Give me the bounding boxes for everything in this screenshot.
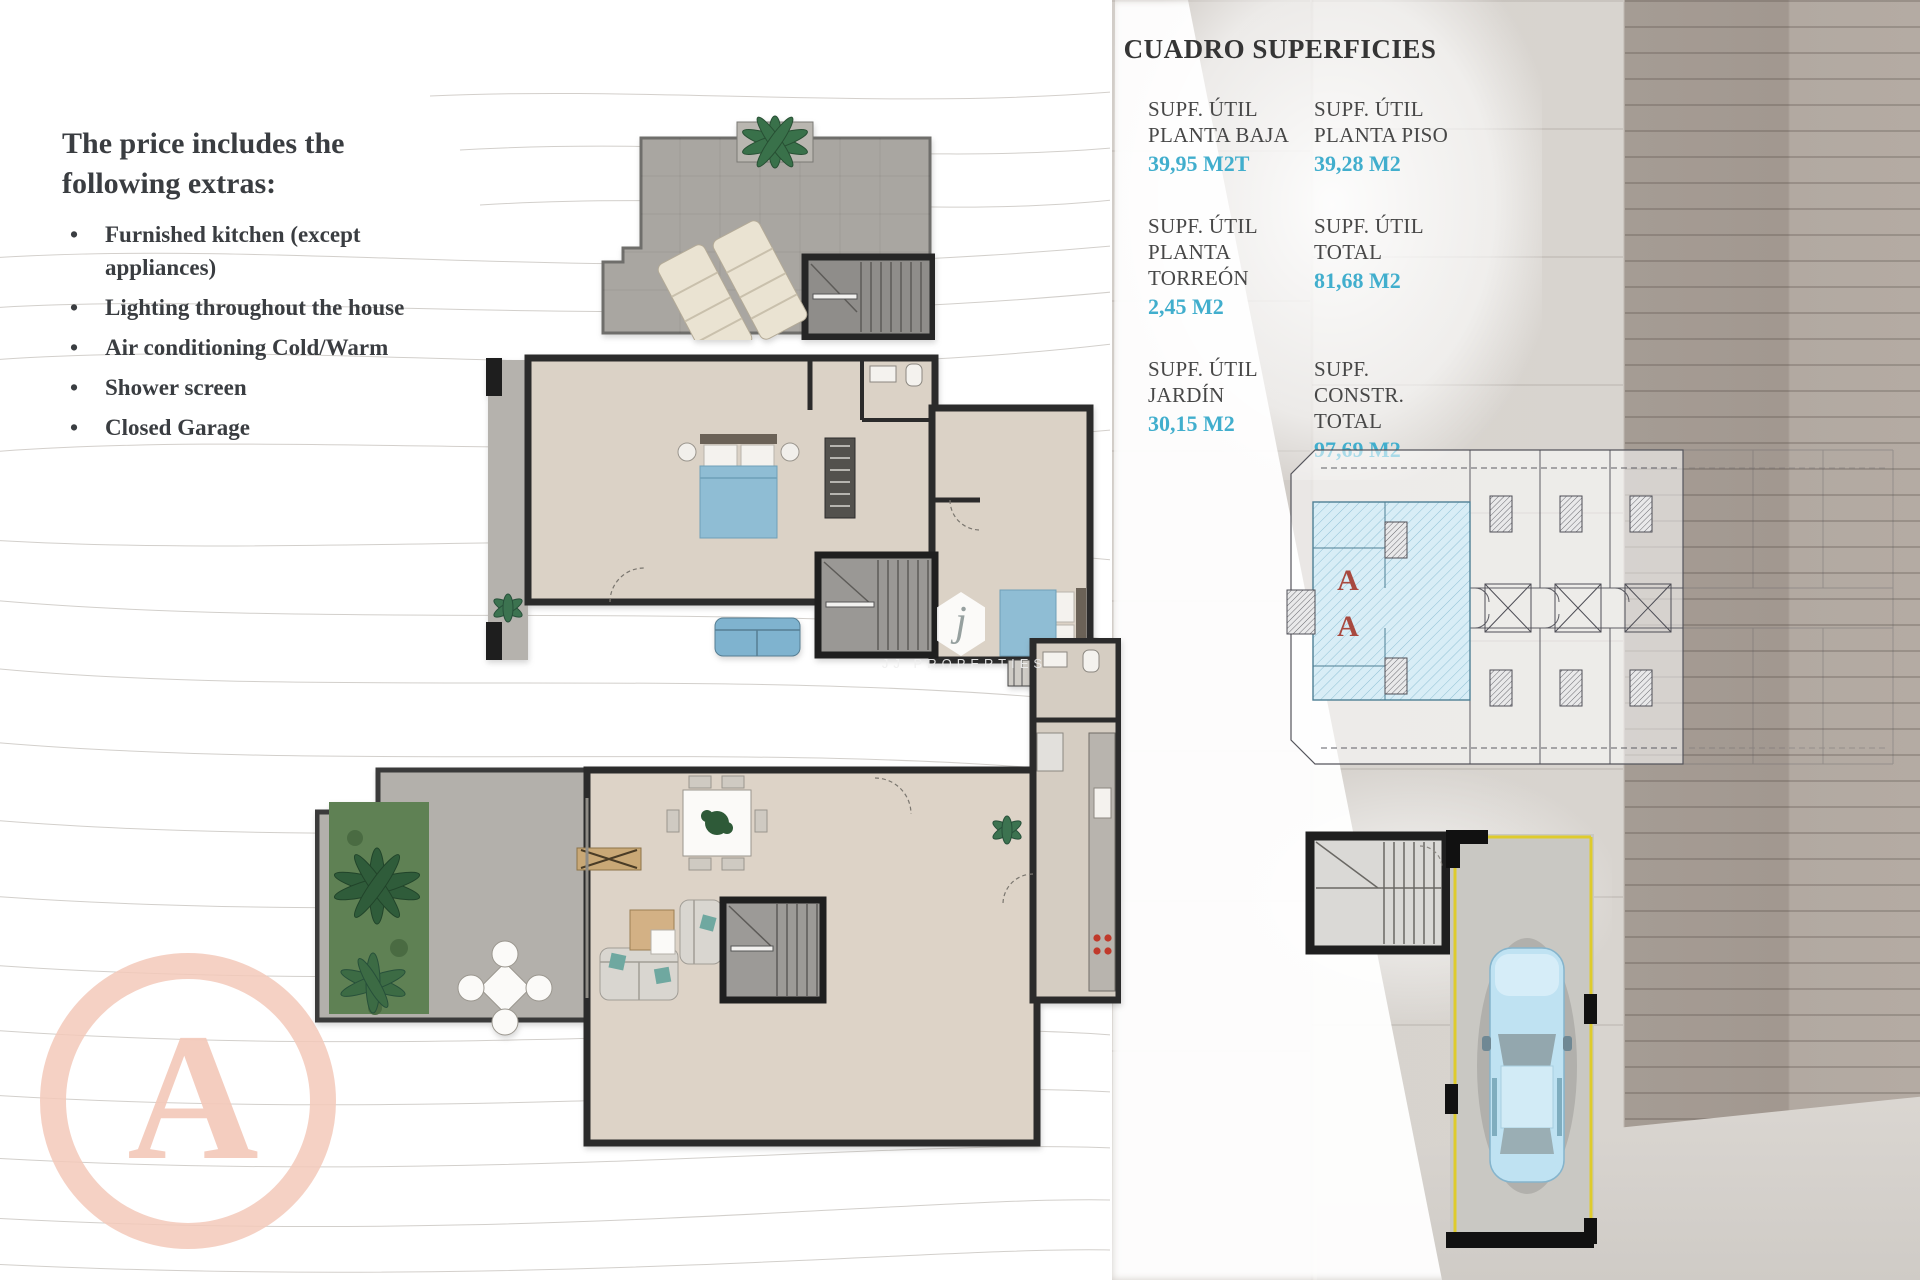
entry-stairs xyxy=(1287,590,1315,634)
surface-entry: SUPF. ÚTIL PLANTA TORREÓN 2,45 M2 xyxy=(1148,213,1306,320)
list-item: Lighting throughout the house xyxy=(62,291,445,324)
coffee-table xyxy=(630,910,675,954)
surface-value: 81,68 M2 xyxy=(1314,268,1464,294)
watermark-letter: A xyxy=(108,1003,278,1193)
stairs xyxy=(723,900,823,1000)
surfaces-title: CUADRO SUPERFICIES xyxy=(1120,34,1440,65)
unit-marker-a: A xyxy=(1337,564,1359,597)
garage-plan xyxy=(1302,826,1602,1256)
stair-detail-plan xyxy=(1310,836,1446,950)
sofa xyxy=(600,948,678,1000)
armchair xyxy=(680,900,722,964)
side-table xyxy=(678,443,696,461)
surface-entry: SUPF. ÚTIL JARDÍN 30,15 M2 xyxy=(1148,356,1306,463)
ground-floor-plan xyxy=(315,638,1121,1153)
logo-letter: j xyxy=(955,601,967,643)
extras-heading: The price includes the following extras: xyxy=(62,124,402,204)
agency-logo-text: JJ PROPERTIES xyxy=(872,656,1057,671)
side-table xyxy=(781,443,799,461)
list-item: Furnished kitchen (except appliances) xyxy=(62,218,445,284)
toilet xyxy=(1083,650,1099,672)
surface-value: 39,28 M2 xyxy=(1314,151,1464,177)
toilet xyxy=(906,364,922,386)
surface-value: 39,95 M2T xyxy=(1148,151,1306,177)
roof-terrace-floor-plan xyxy=(505,112,935,340)
surface-value: 2,45 M2 xyxy=(1148,294,1306,320)
wardrobe xyxy=(825,438,855,518)
sink xyxy=(870,366,896,382)
list-item: Air conditioning Cold/Warm xyxy=(62,331,445,364)
surface-entry: SUPF. ÚTIL PLANTA PISO 39,28 M2 xyxy=(1314,96,1464,177)
extras-list: Furnished kitchen (except appliances) Li… xyxy=(62,218,482,444)
list-item: Shower screen xyxy=(62,371,445,404)
site-plan: A A xyxy=(1285,438,1905,778)
surfaces-grid: SUPF. ÚTIL PLANTA BAJA 39,95 M2T SUPF. Ú… xyxy=(1148,96,1464,463)
roof-stairwell xyxy=(805,257,933,337)
list-item: Closed Garage xyxy=(62,411,445,444)
extras-section: The price includes the following extras:… xyxy=(62,124,482,451)
surface-value: 30,15 M2 xyxy=(1148,411,1306,437)
surface-entry: SUPF. ÚTIL TOTAL 81,68 M2 xyxy=(1314,213,1464,320)
car-icon xyxy=(1477,938,1577,1194)
highlighted-unit-a xyxy=(1313,502,1470,700)
page: The price includes the following extras:… xyxy=(0,0,1920,1280)
surfaces-table: CUADRO SUPERFICIES SUPF. ÚTIL PLANTA BAJ… xyxy=(1120,34,1540,65)
surface-entry: SUPF. ÚTIL PLANTA BAJA 39,95 M2T xyxy=(1148,96,1306,177)
unit-marker-a: A xyxy=(1337,610,1359,643)
plant-icon xyxy=(737,114,813,170)
